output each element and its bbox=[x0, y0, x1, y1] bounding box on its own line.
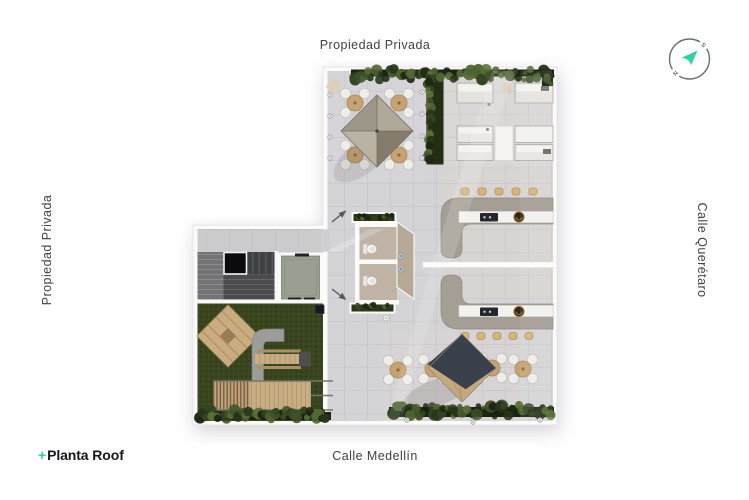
hedge-foliage bbox=[367, 75, 374, 82]
hedge-foliage bbox=[377, 305, 380, 308]
hedge-foliage bbox=[411, 404, 420, 413]
vestibule-opening bbox=[321, 230, 330, 253]
hedge-foliage bbox=[423, 403, 428, 408]
hedge-foliage bbox=[273, 408, 280, 415]
hedge-foliage bbox=[367, 217, 371, 221]
hedge-foliage bbox=[476, 403, 482, 409]
toilet-icon bbox=[363, 244, 377, 254]
hedge-foliage bbox=[364, 67, 372, 75]
hedge-foliage bbox=[425, 103, 430, 108]
hedge-foliage bbox=[420, 411, 426, 417]
machine-room bbox=[278, 253, 323, 303]
hedge-foliage bbox=[214, 415, 221, 422]
hedge-foliage bbox=[371, 302, 377, 308]
hedge-foliage bbox=[471, 408, 483, 420]
hedge-foliage bbox=[356, 305, 362, 311]
hedge-foliage bbox=[425, 87, 430, 92]
toilet-icon bbox=[363, 276, 377, 286]
hedge-foliage bbox=[425, 78, 434, 87]
hedge-foliage bbox=[425, 155, 434, 164]
hedge-foliage bbox=[389, 213, 394, 218]
hedge-foliage bbox=[385, 213, 390, 218]
hedge-foliage bbox=[388, 305, 391, 308]
hedge-foliage bbox=[320, 413, 330, 423]
elevator-skylight bbox=[224, 253, 247, 275]
hedge-foliage bbox=[500, 403, 507, 410]
hedge-foliage bbox=[503, 410, 513, 420]
hedge-foliage bbox=[492, 414, 497, 419]
hedge-foliage bbox=[374, 216, 377, 219]
page: Propiedad Privada Propiedad Privada Call… bbox=[0, 0, 749, 500]
hedge-foliage bbox=[382, 215, 386, 219]
hedge-foliage bbox=[427, 118, 433, 124]
picnic-table bbox=[255, 350, 311, 370]
equipment-box bbox=[315, 305, 324, 314]
roof-plan bbox=[0, 0, 749, 500]
hedge-foliage bbox=[436, 73, 445, 82]
hedge-foliage bbox=[425, 142, 433, 150]
angled-privacy-screen bbox=[397, 222, 414, 299]
